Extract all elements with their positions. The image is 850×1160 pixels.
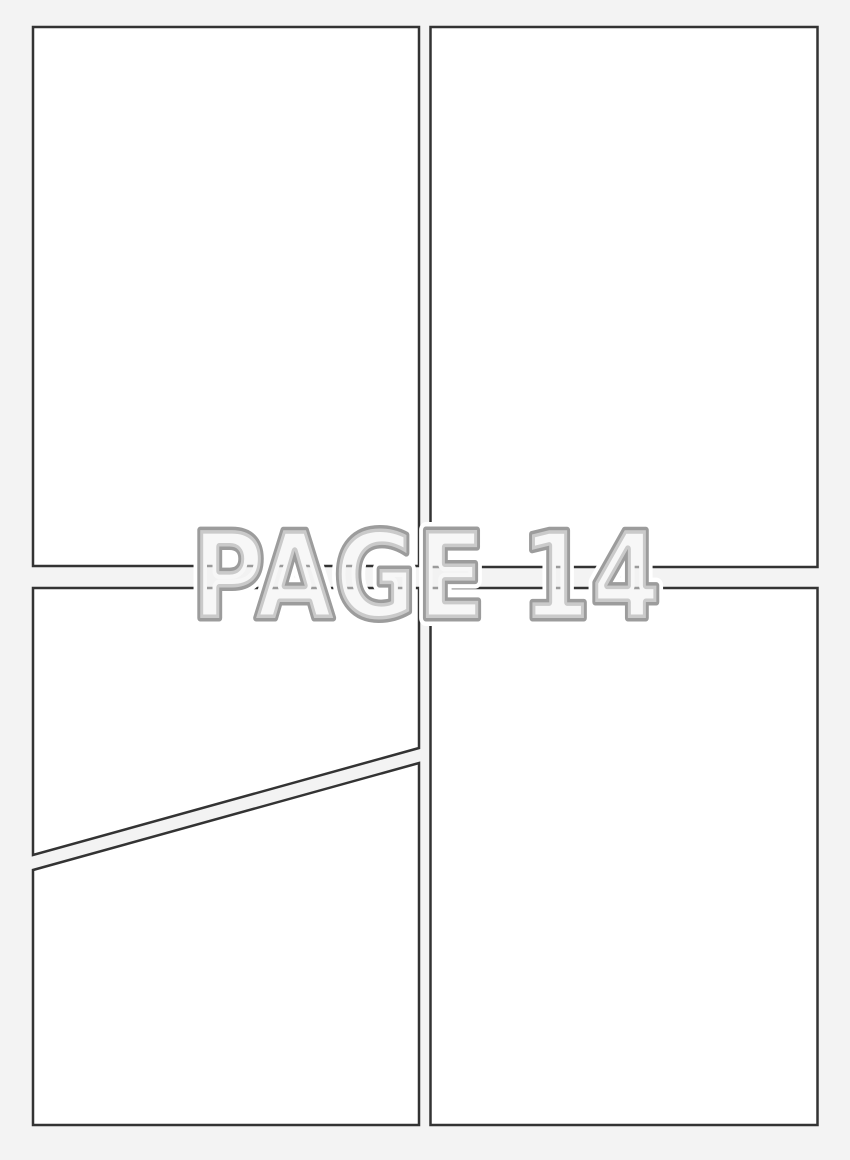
panel-top-left	[33, 27, 419, 566]
page-number-watermark: PAGE 14 PAGE 14 PAGE 14	[191, 508, 661, 647]
comic-page-template: PAGE 14 PAGE 14 PAGE 14	[0, 0, 850, 1160]
panel-bottom-right	[431, 588, 818, 1125]
page-canvas: PAGE 14 PAGE 14 PAGE 14	[0, 0, 850, 1160]
watermark-text: PAGE 14	[191, 508, 661, 647]
panel-top-right	[431, 27, 818, 567]
